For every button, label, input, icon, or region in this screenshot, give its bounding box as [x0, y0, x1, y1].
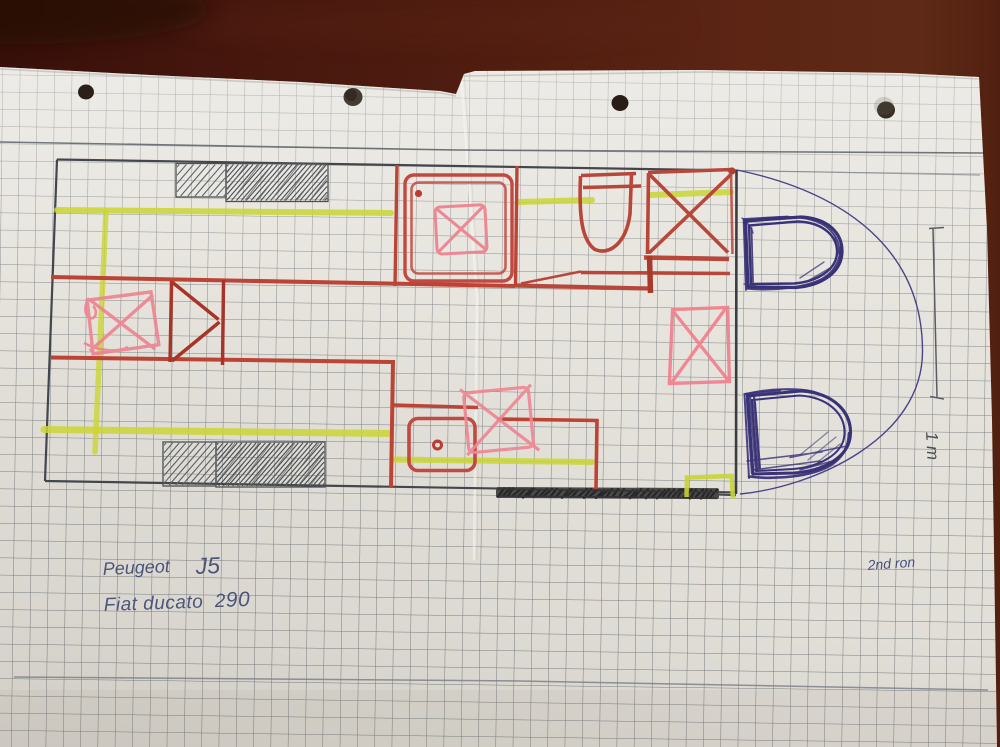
svg-text:2nd ron: 2nd ron: [866, 554, 916, 573]
svg-text:1 m: 1 m: [922, 431, 942, 460]
